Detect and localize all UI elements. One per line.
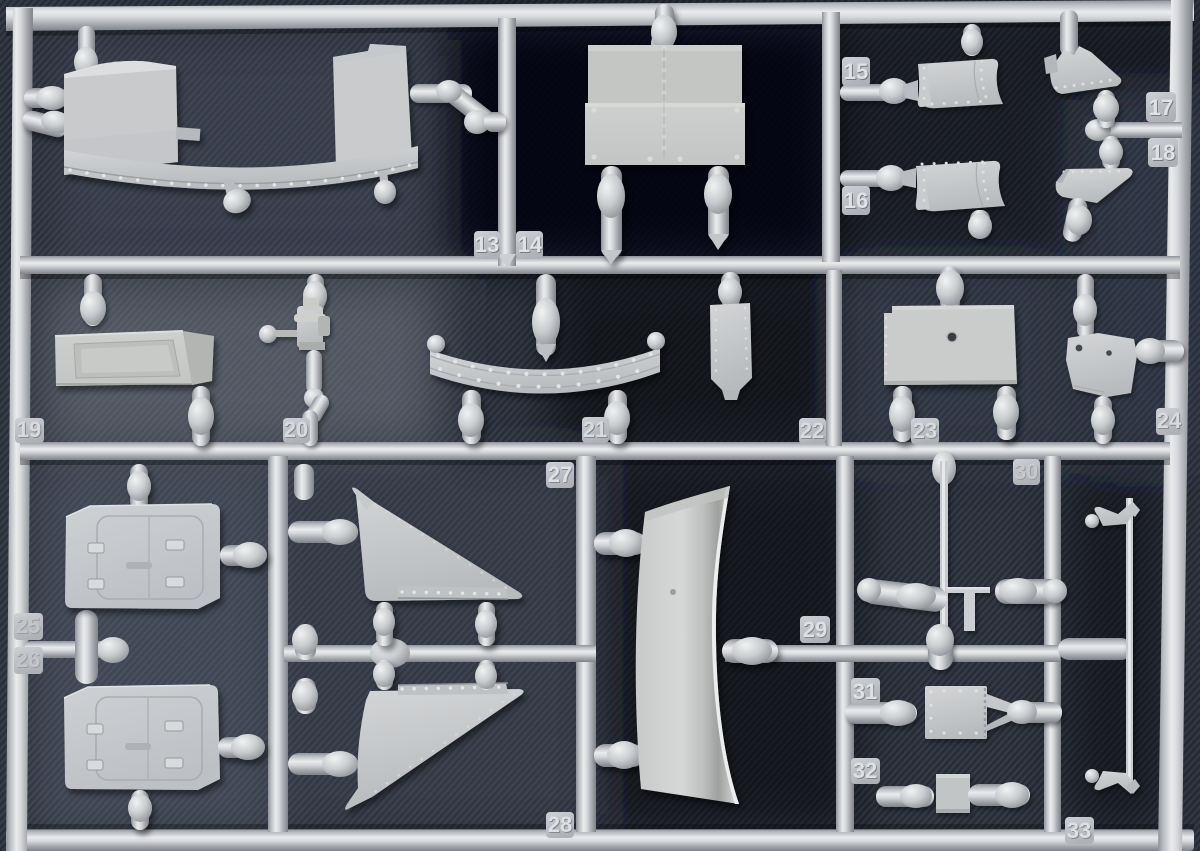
svg-text:29: 29 [803,617,827,642]
svg-text:15: 15 [844,59,868,84]
svg-text:30: 30 [1014,459,1038,484]
svg-text:22: 22 [800,418,824,443]
svg-text:13: 13 [475,232,499,257]
svg-text:23: 23 [913,418,937,443]
svg-text:21: 21 [583,417,607,442]
svg-text:32: 32 [853,758,877,783]
svg-text:28: 28 [548,812,572,837]
svg-text:24: 24 [1157,408,1182,433]
svg-text:33: 33 [1067,818,1091,843]
svg-text:31: 31 [853,679,877,704]
svg-text:26: 26 [16,647,40,672]
svg-text:25: 25 [16,613,40,638]
svg-text:20: 20 [284,417,308,442]
svg-text:17: 17 [1149,95,1173,120]
svg-text:27: 27 [548,462,572,487]
svg-text:16: 16 [844,188,868,213]
svg-text:19: 19 [17,417,41,442]
svg-text:14: 14 [518,232,543,257]
svg-text:18: 18 [1151,140,1175,165]
